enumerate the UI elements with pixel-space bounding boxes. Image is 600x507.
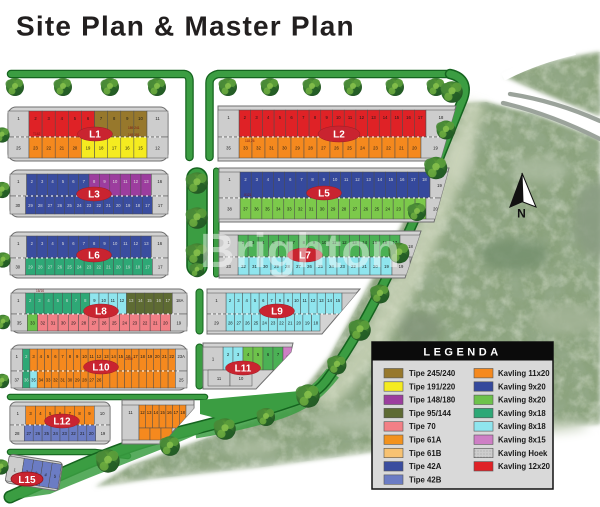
svg-text:26: 26	[245, 320, 250, 325]
svg-text:12: 12	[311, 298, 316, 303]
svg-text:18: 18	[99, 145, 104, 150]
svg-text:30: 30	[320, 206, 325, 211]
svg-text:18: 18	[135, 203, 140, 208]
svg-text:23: 23	[396, 206, 401, 211]
svg-text:L1: L1	[89, 130, 101, 141]
svg-text:16: 16	[125, 145, 130, 150]
svg-text:21: 21	[80, 431, 85, 436]
svg-text:21: 21	[59, 145, 64, 150]
svg-text:12: 12	[97, 354, 102, 359]
svg-text:16: 16	[167, 410, 172, 415]
svg-text:37: 37	[243, 206, 248, 211]
svg-text:21: 21	[162, 354, 167, 359]
svg-text:32: 32	[256, 145, 261, 150]
svg-text:25: 25	[254, 320, 259, 325]
svg-text:26: 26	[102, 320, 107, 325]
svg-text:17: 17	[418, 115, 423, 120]
svg-text:N: N	[517, 207, 526, 221]
svg-text:19: 19	[126, 203, 131, 208]
svg-text:L3: L3	[88, 190, 100, 201]
svg-text:29: 29	[28, 264, 33, 269]
svg-text:Kavling 11x20: Kavling 11x20	[498, 369, 550, 378]
svg-text:13: 13	[129, 298, 134, 303]
svg-text:T162: T162	[33, 132, 40, 136]
svg-text:13: 13	[147, 410, 152, 415]
svg-text:L8: L8	[95, 307, 107, 318]
svg-text:17: 17	[133, 354, 138, 359]
svg-text:16: 16	[400, 177, 405, 182]
svg-text:11: 11	[348, 115, 353, 120]
svg-text:13: 13	[319, 298, 324, 303]
svg-text:25: 25	[67, 203, 72, 208]
svg-text:21: 21	[399, 145, 404, 150]
svg-text:10: 10	[333, 177, 338, 182]
svg-text:21: 21	[288, 320, 293, 325]
svg-text:Tipe 245/240: Tipe 245/240	[409, 369, 456, 378]
svg-text:25: 25	[44, 431, 49, 436]
svg-text:22: 22	[279, 320, 284, 325]
svg-text:27: 27	[321, 145, 326, 150]
svg-text:24: 24	[77, 264, 82, 269]
svg-text:17: 17	[158, 203, 163, 208]
svg-text:31: 31	[309, 206, 314, 211]
svg-text:25: 25	[347, 145, 352, 150]
svg-text:20: 20	[89, 431, 94, 436]
svg-text:31: 31	[269, 145, 274, 150]
svg-text:L12: L12	[53, 417, 71, 428]
svg-text:29: 29	[331, 206, 336, 211]
svg-text:17: 17	[158, 264, 163, 269]
svg-text:L9: L9	[271, 307, 283, 318]
svg-text:20: 20	[163, 320, 168, 325]
svg-text:14: 14	[138, 298, 143, 303]
svg-text:12: 12	[133, 241, 138, 246]
svg-text:15: 15	[138, 145, 143, 150]
svg-text:25: 25	[374, 206, 379, 211]
svg-text:11: 11	[123, 241, 128, 246]
svg-text:23: 23	[33, 145, 38, 150]
svg-text:37: 37	[14, 377, 19, 382]
svg-text:16: 16	[406, 115, 411, 120]
svg-text:32: 32	[298, 206, 303, 211]
svg-text:33: 33	[46, 377, 51, 382]
svg-text:28: 28	[15, 431, 20, 436]
svg-text:20: 20	[155, 354, 160, 359]
svg-text:22: 22	[169, 354, 174, 359]
svg-text:Site Plan & Master Plan: Site Plan & Master Plan	[16, 11, 355, 42]
svg-text:19: 19	[305, 320, 310, 325]
svg-text:25: 25	[179, 377, 184, 382]
svg-text:Kavling 9x18: Kavling 9x18	[498, 409, 546, 418]
svg-text:13: 13	[104, 354, 109, 359]
svg-text:11: 11	[155, 116, 160, 121]
svg-text:11: 11	[128, 410, 133, 415]
svg-text:12: 12	[140, 410, 145, 415]
svg-text:27: 27	[48, 203, 53, 208]
svg-text:11: 11	[111, 298, 116, 303]
svg-text:20: 20	[412, 145, 417, 150]
svg-text:34: 34	[276, 206, 281, 211]
svg-text:18: 18	[140, 354, 145, 359]
svg-text:15: 15	[160, 410, 165, 415]
svg-text:Tipe 148/180: Tipe 148/180	[409, 396, 456, 405]
svg-text:Tipe 42B: Tipe 42B	[409, 475, 442, 484]
svg-text:20: 20	[296, 320, 301, 325]
svg-text:L5: L5	[318, 189, 330, 200]
svg-text:11: 11	[303, 298, 308, 303]
svg-text:Tipe 61A: Tipe 61A	[409, 436, 442, 445]
svg-text:13: 13	[371, 115, 376, 120]
svg-text:33: 33	[243, 145, 248, 150]
svg-text:23: 23	[87, 203, 92, 208]
svg-text:17: 17	[112, 145, 117, 150]
svg-text:22: 22	[96, 264, 101, 269]
svg-text:Tipe 70: Tipe 70	[409, 422, 436, 431]
svg-text:23A: 23A	[177, 354, 185, 359]
svg-text:33: 33	[287, 206, 292, 211]
svg-text:18: 18	[408, 244, 413, 249]
svg-text:35: 35	[17, 320, 22, 325]
svg-text:14: 14	[111, 354, 116, 359]
svg-text:12: 12	[355, 177, 360, 182]
svg-text:Tipe 42A: Tipe 42A	[409, 462, 442, 471]
svg-text:28: 28	[82, 377, 87, 382]
svg-text:24: 24	[53, 431, 58, 436]
svg-text:118,26: 118,26	[245, 139, 255, 143]
svg-text:28: 28	[342, 206, 347, 211]
svg-text:18: 18	[422, 177, 427, 182]
svg-text:23: 23	[271, 320, 276, 325]
svg-text:13: 13	[144, 179, 149, 184]
svg-text:Kavling 12x20: Kavling 12x20	[498, 462, 551, 471]
svg-text:L11: L11	[235, 364, 252, 375]
svg-text:26: 26	[57, 203, 62, 208]
svg-text:22: 22	[71, 431, 76, 436]
svg-text:32: 32	[53, 377, 58, 382]
svg-text:10: 10	[82, 354, 87, 359]
svg-text:13: 13	[366, 177, 371, 182]
svg-text:25: 25	[112, 320, 117, 325]
svg-text:30: 30	[68, 377, 73, 382]
svg-text:27: 27	[353, 206, 358, 211]
svg-text:29: 29	[71, 320, 76, 325]
svg-text:16/16: 16/16	[36, 289, 44, 293]
svg-text:18: 18	[180, 410, 185, 415]
svg-text:15: 15	[389, 177, 394, 182]
svg-text:L6: L6	[88, 251, 100, 262]
svg-text:14: 14	[383, 115, 388, 120]
svg-text:Kavling 8x18: Kavling 8x18	[498, 422, 546, 431]
svg-text:24: 24	[385, 206, 390, 211]
svg-text:18: 18	[313, 320, 318, 325]
svg-text:28: 28	[38, 264, 43, 269]
svg-text:L2: L2	[333, 130, 345, 141]
svg-text:36: 36	[24, 377, 29, 382]
svg-text:14: 14	[377, 177, 382, 182]
svg-text:Kavling 9x20: Kavling 9x20	[498, 382, 546, 391]
svg-text:28: 28	[228, 320, 233, 325]
svg-text:28: 28	[81, 320, 86, 325]
svg-text:30: 30	[15, 264, 20, 269]
svg-text:25: 25	[67, 264, 72, 269]
svg-text:31: 31	[60, 377, 65, 382]
svg-text:17: 17	[411, 177, 416, 182]
svg-text:18A: 18A	[176, 298, 184, 303]
svg-text:23: 23	[62, 431, 67, 436]
svg-text:24: 24	[77, 203, 82, 208]
svg-text:17: 17	[145, 203, 150, 208]
svg-text:19: 19	[176, 320, 181, 325]
svg-text:16: 16	[157, 241, 162, 246]
svg-text:17: 17	[174, 410, 179, 415]
svg-text:12: 12	[120, 298, 125, 303]
svg-text:21: 21	[106, 203, 111, 208]
svg-text:30: 30	[61, 320, 66, 325]
svg-text:26: 26	[35, 431, 40, 436]
svg-text:15: 15	[118, 354, 123, 359]
svg-text:19: 19	[433, 145, 438, 150]
svg-text:10: 10	[100, 411, 105, 416]
svg-text:32: 32	[40, 320, 45, 325]
svg-text:20: 20	[116, 203, 121, 208]
svg-text:27: 27	[92, 320, 97, 325]
svg-text:18: 18	[135, 264, 140, 269]
svg-text:Tipe 61B: Tipe 61B	[409, 449, 442, 458]
svg-text:28: 28	[308, 145, 313, 150]
svg-text:19: 19	[126, 264, 131, 269]
svg-text:10: 10	[113, 179, 118, 184]
svg-text:24: 24	[360, 145, 365, 150]
svg-text:12: 12	[359, 115, 364, 120]
svg-text:29: 29	[75, 377, 80, 382]
svg-text:10: 10	[294, 298, 299, 303]
svg-text:12: 12	[133, 179, 138, 184]
svg-text:27: 27	[89, 377, 94, 382]
svg-text:10: 10	[239, 376, 244, 381]
svg-text:30: 30	[15, 203, 20, 208]
svg-text:X121: X121	[244, 193, 252, 197]
svg-text:11: 11	[123, 179, 128, 184]
svg-text:33: 33	[30, 320, 35, 325]
svg-text:22: 22	[386, 145, 391, 150]
svg-text:17: 17	[165, 298, 170, 303]
svg-text:28: 28	[38, 203, 43, 208]
svg-text:23: 23	[132, 320, 137, 325]
svg-text:26: 26	[57, 264, 62, 269]
svg-text:10: 10	[336, 115, 341, 120]
svg-text:18: 18	[439, 115, 444, 120]
svg-text:26: 26	[363, 206, 368, 211]
svg-text:38: 38	[227, 206, 232, 211]
svg-text:31: 31	[51, 320, 56, 325]
svg-text:27: 27	[236, 320, 241, 325]
svg-text:L10: L10	[92, 363, 110, 374]
svg-text:16: 16	[156, 298, 161, 303]
svg-text:25: 25	[16, 145, 21, 150]
svg-text:27: 27	[26, 431, 31, 436]
svg-text:21: 21	[153, 320, 158, 325]
svg-text:Brighton: Brighton	[200, 225, 400, 278]
svg-text:19: 19	[148, 354, 153, 359]
svg-text:C450: C450	[125, 357, 133, 361]
svg-text:11: 11	[90, 354, 95, 359]
svg-text:24: 24	[262, 320, 267, 325]
svg-text:22: 22	[143, 320, 148, 325]
svg-text:L15: L15	[18, 475, 36, 486]
svg-text:10: 10	[113, 241, 118, 246]
svg-text:LEGENDA: LEGENDA	[423, 347, 501, 359]
svg-text:11: 11	[344, 177, 349, 182]
svg-text:36: 36	[254, 206, 259, 211]
svg-text:15: 15	[147, 298, 152, 303]
svg-text:14: 14	[327, 298, 332, 303]
svg-text:12: 12	[155, 145, 160, 150]
svg-text:Kavling Hoek: Kavling Hoek	[498, 449, 548, 458]
svg-text:19: 19	[86, 145, 91, 150]
svg-text:10: 10	[138, 116, 143, 121]
svg-text:26: 26	[334, 145, 339, 150]
svg-text:Tipe 95/144: Tipe 95/144	[409, 409, 452, 418]
svg-text:19: 19	[437, 183, 442, 188]
svg-text:35: 35	[31, 377, 36, 382]
svg-text:Kavling 8x15: Kavling 8x15	[498, 436, 546, 445]
svg-text:26: 26	[97, 377, 102, 382]
svg-text:34: 34	[38, 377, 43, 382]
svg-text:15: 15	[336, 298, 341, 303]
svg-text:16: 16	[157, 179, 162, 184]
svg-text:10: 10	[101, 298, 106, 303]
svg-text:30: 30	[282, 145, 287, 150]
svg-text:13: 13	[144, 241, 149, 246]
svg-text:19: 19	[101, 431, 106, 436]
svg-text:29: 29	[295, 145, 300, 150]
svg-text:27: 27	[48, 264, 53, 269]
svg-text:35: 35	[226, 145, 231, 150]
svg-text:24: 24	[122, 320, 127, 325]
svg-text:23: 23	[373, 145, 378, 150]
svg-text:22: 22	[46, 145, 51, 150]
svg-text:29: 29	[214, 320, 219, 325]
svg-text:Kavling 8x20: Kavling 8x20	[498, 396, 546, 405]
svg-text:Tipe 191/220: Tipe 191/220	[409, 382, 456, 391]
svg-text:29: 29	[28, 203, 33, 208]
svg-text:189 241: 189 241	[128, 126, 140, 130]
svg-text:23: 23	[87, 264, 92, 269]
svg-text:14: 14	[153, 410, 158, 415]
svg-text:17: 17	[145, 264, 150, 269]
svg-text:20: 20	[116, 264, 121, 269]
svg-text:11: 11	[217, 376, 222, 381]
svg-text:149 191: 149 191	[128, 133, 140, 137]
svg-text:21: 21	[106, 264, 111, 269]
svg-text:20: 20	[73, 145, 78, 150]
svg-text:22: 22	[96, 203, 101, 208]
svg-text:35: 35	[265, 206, 270, 211]
svg-text:15: 15	[394, 115, 399, 120]
